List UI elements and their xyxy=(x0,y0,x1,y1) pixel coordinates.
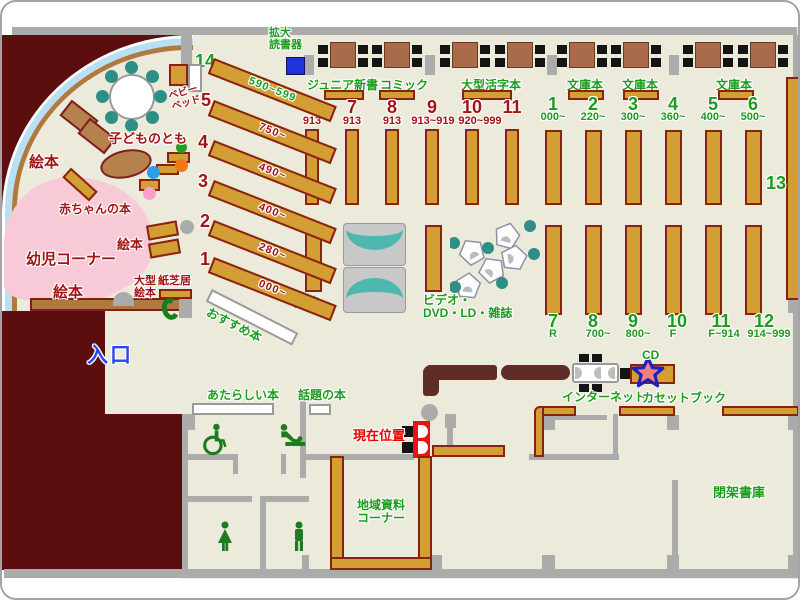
chair xyxy=(440,45,450,54)
new-books-label: あたらしい本 xyxy=(207,389,279,402)
wall-netroom-v xyxy=(613,414,618,460)
pillar-counter xyxy=(445,414,456,428)
chair xyxy=(372,45,382,54)
chair xyxy=(597,45,607,54)
shelf-range: 913 xyxy=(372,116,412,128)
chair xyxy=(535,45,545,54)
chair xyxy=(372,58,382,67)
av-label: ビデオ・ DVD・LD・雑誌 xyxy=(423,294,512,320)
bookshelf xyxy=(705,130,722,205)
magnifier-label: 拡大 読書器 xyxy=(269,28,309,52)
pillar-b2 xyxy=(542,555,555,569)
cushion-blue xyxy=(147,166,160,179)
local-corner-shelf-right xyxy=(418,456,432,570)
topic-books-label: 話題の本 xyxy=(298,389,346,402)
chair xyxy=(495,58,505,67)
stacks-shelf xyxy=(722,406,799,416)
wall-toilet-stub1 xyxy=(233,454,238,474)
reading-table xyxy=(569,42,595,68)
av-shelf xyxy=(425,225,442,292)
stool xyxy=(105,111,118,124)
chair xyxy=(358,45,368,54)
chair xyxy=(683,45,693,54)
wall-bottom xyxy=(4,569,799,578)
kodomo-no-tomo-label: 子どものとも xyxy=(109,132,187,146)
stool xyxy=(154,90,167,103)
bookshelf xyxy=(665,225,682,315)
service-counter xyxy=(423,365,439,396)
shelf-range: 920~999 xyxy=(454,116,506,128)
pillar-4 xyxy=(669,55,679,75)
current-location-label: 現在位置 xyxy=(353,429,405,443)
local-materials-label: 地域資料 コーナー xyxy=(352,499,410,525)
net-room-shelf-v xyxy=(534,406,544,457)
bookshelf xyxy=(625,225,642,315)
bookshelf xyxy=(505,129,519,205)
shelf-range: 000~ xyxy=(533,112,573,124)
baby-books-label: 赤ちゃんの本 xyxy=(59,203,131,216)
shelf-no: 3 xyxy=(198,172,208,191)
bookshelf xyxy=(345,129,359,205)
pillar-cassette xyxy=(667,415,679,430)
shelf13-label: 13 xyxy=(766,174,786,193)
topic-books-shelf xyxy=(309,404,331,415)
pillar-3 xyxy=(547,55,557,75)
wheelchair-icon xyxy=(197,422,233,456)
local-corner-shelf-left xyxy=(330,456,344,570)
chair xyxy=(592,354,602,362)
stool xyxy=(105,70,118,83)
cushion-pink xyxy=(143,187,156,200)
shelf-range: 913~919 xyxy=(407,116,459,128)
chair xyxy=(778,58,788,67)
shelf-range: 300~ xyxy=(613,112,653,124)
chair xyxy=(723,58,733,67)
bookshelf xyxy=(545,130,562,205)
chair xyxy=(495,45,505,54)
cd-label: CD xyxy=(642,349,659,362)
chair xyxy=(318,45,328,54)
bookshelf xyxy=(385,129,399,205)
pillar-toilet-left xyxy=(182,414,195,430)
chair xyxy=(318,58,328,67)
pillar-shelf13 xyxy=(788,300,800,313)
shelf-range: 800~ xyxy=(618,329,658,341)
av-booth-cluster xyxy=(450,220,542,304)
entrance-label: 入口 xyxy=(87,345,133,368)
infant-corner-label: 幼児コーナー xyxy=(26,252,116,268)
baby-change-icon xyxy=(276,422,308,454)
shelf-range: 913 xyxy=(332,116,372,128)
chair xyxy=(579,354,589,362)
stool xyxy=(125,61,138,74)
bookshelf-13 xyxy=(786,77,800,300)
picture-books-label: 絵本 xyxy=(29,155,59,171)
wall-toilet-stub2 xyxy=(281,454,286,474)
chair xyxy=(597,58,607,67)
seat xyxy=(594,367,601,379)
wall-stacks-v xyxy=(672,480,678,556)
service-counter xyxy=(501,365,570,380)
pillar-1 xyxy=(304,55,314,75)
bookshelf xyxy=(745,130,762,205)
seat xyxy=(608,367,615,379)
pillar-b3 xyxy=(667,555,679,569)
chair xyxy=(778,45,788,54)
chair xyxy=(738,45,748,54)
closed-stacks-label: 閉架書庫 xyxy=(713,486,765,500)
shelf-range: 220~ xyxy=(573,112,613,124)
bookshelf xyxy=(425,129,439,205)
bookshelf xyxy=(625,130,642,205)
shelf-range: R xyxy=(533,329,573,341)
magnifier-device xyxy=(286,57,305,75)
chair xyxy=(358,58,368,67)
chair xyxy=(557,58,567,67)
chair xyxy=(683,58,693,67)
shelf-no: 4 xyxy=(198,133,208,152)
shelf-range: 500~ xyxy=(733,112,773,124)
wall-toilet-v2 xyxy=(260,496,266,569)
bookshelf xyxy=(745,225,762,315)
wall-top xyxy=(12,27,797,35)
pillar-r2 xyxy=(788,555,800,569)
chair xyxy=(480,58,490,67)
shelf-range: 400~ xyxy=(693,112,733,124)
kamishibai-label: 紙芝居 xyxy=(158,276,191,288)
bookshelf xyxy=(585,130,602,205)
chair xyxy=(651,58,661,67)
chair xyxy=(738,58,748,67)
reading-table xyxy=(623,42,649,68)
reading-table xyxy=(695,42,721,68)
stool xyxy=(146,111,159,124)
wall-toilet-left xyxy=(182,414,188,569)
baby-bed xyxy=(169,64,188,86)
cushion-orange xyxy=(175,159,188,172)
chair xyxy=(535,58,545,67)
chair xyxy=(412,45,422,54)
chair xyxy=(723,45,733,54)
wall-toilet-h3 xyxy=(182,496,252,502)
bookshelf xyxy=(465,129,479,205)
wall-toilet-h2 xyxy=(300,454,414,460)
pillar-r1 xyxy=(788,414,800,430)
shelf-range: F xyxy=(658,329,688,341)
man-icon xyxy=(288,521,310,553)
reading-table xyxy=(384,42,410,68)
wall-toilet-h4 xyxy=(260,496,309,502)
bookshelf xyxy=(585,225,602,315)
new-books-shelf xyxy=(192,403,274,415)
reading-table xyxy=(750,42,776,68)
stool xyxy=(146,70,159,83)
local-corner-shelf-bottom xyxy=(330,557,432,570)
chair xyxy=(651,45,661,54)
exterior-area-bottom-left2 xyxy=(105,414,183,570)
cassette-shelf xyxy=(619,406,675,416)
shelf-range: 914~999 xyxy=(738,329,800,341)
library-floor-map: 拡大 読書器 ジュニア新書 コミック 大型活字本 文庫本 文庫本 文庫本 6 7… xyxy=(0,0,800,600)
chair xyxy=(480,45,490,54)
reading-table xyxy=(507,42,533,68)
wall-toilet-stub3 xyxy=(302,555,309,569)
shelf-bar xyxy=(432,445,505,457)
chair xyxy=(611,58,621,67)
pillar-2 xyxy=(425,55,435,75)
bookshelf xyxy=(705,225,722,315)
chair xyxy=(557,45,567,54)
cassette-label: カセットブック xyxy=(642,392,726,405)
shelf-no: 5 xyxy=(201,91,211,110)
children-door-arc xyxy=(113,292,134,306)
chair xyxy=(611,45,621,54)
reading-table xyxy=(452,42,478,68)
shelf-no: 2 xyxy=(200,212,210,231)
reading-table xyxy=(330,42,356,68)
shelf-range: 700~ xyxy=(578,329,618,341)
picture-books-label: 絵本 xyxy=(117,238,143,252)
shelf-no: 1 xyxy=(200,250,210,269)
woman-icon xyxy=(213,521,237,553)
chair xyxy=(402,442,413,453)
pillar-ehon-dot xyxy=(180,220,194,234)
bookshelf xyxy=(665,130,682,205)
internet-label: インターネット xyxy=(562,391,646,404)
stool xyxy=(96,90,109,103)
bookshelf xyxy=(545,225,562,315)
chair xyxy=(440,58,450,67)
shelf-range: 360~ xyxy=(653,112,693,124)
pillar-marker-dot xyxy=(421,404,438,421)
chair xyxy=(412,58,422,67)
picture-books-label: 絵本 xyxy=(53,285,83,301)
